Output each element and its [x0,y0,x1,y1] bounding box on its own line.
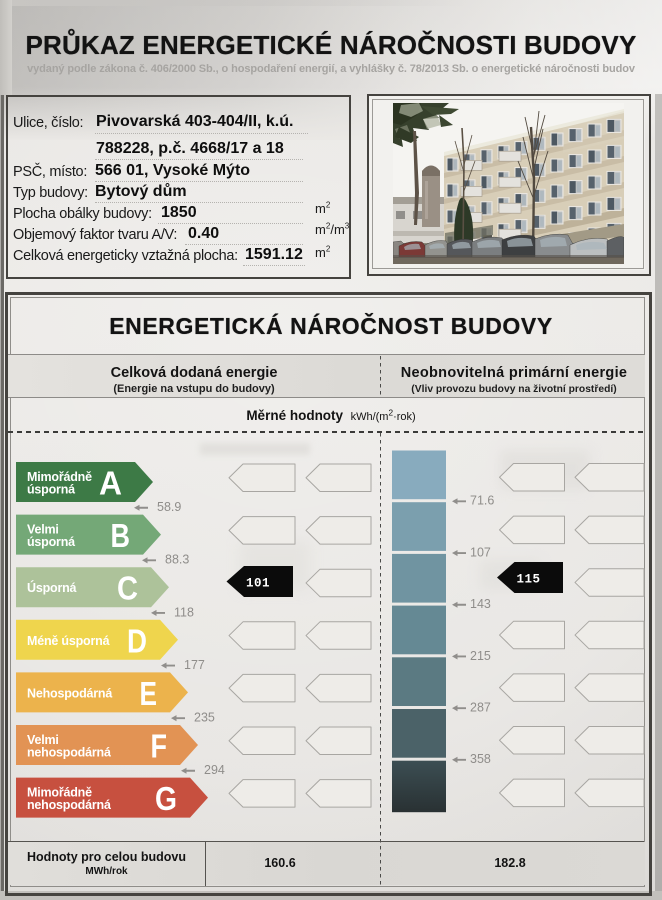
svg-text:71.6: 71.6 [470,494,494,508]
svg-text:58.9: 58.9 [157,500,181,514]
svg-text:Méně úsporná: Méně úsporná [27,634,110,648]
svg-text:E: E [140,675,158,712]
svg-text:177: 177 [184,658,205,672]
svg-text:287: 287 [470,701,491,715]
svg-text:235: 235 [194,711,215,725]
svg-text:88.3: 88.3 [165,553,189,567]
svg-text:nehospodárná: nehospodárná [27,746,111,760]
svg-text:A: A [99,465,122,502]
svg-text:107: 107 [470,545,491,559]
svg-text:B: B [111,517,131,554]
svg-text:215: 215 [470,649,491,663]
svg-text:Úsporná: Úsporná [27,580,77,595]
svg-text:294: 294 [204,763,225,777]
svg-text:C: C [117,570,138,607]
svg-text:101: 101 [246,577,270,591]
svg-text:358: 358 [470,752,491,766]
svg-text:Nehospodárná: Nehospodárná [27,686,112,700]
svg-text:úsporná: úsporná [27,483,75,497]
svg-text:143: 143 [470,597,491,611]
svg-text:nehospodárná: nehospodárná [27,798,111,812]
svg-text:115: 115 [517,573,541,587]
svg-text:G: G [155,780,177,817]
svg-text:118: 118 [174,605,194,619]
svg-text:úsporná: úsporná [27,535,75,549]
svg-text:D: D [127,622,147,659]
svg-text:F: F [151,728,168,765]
